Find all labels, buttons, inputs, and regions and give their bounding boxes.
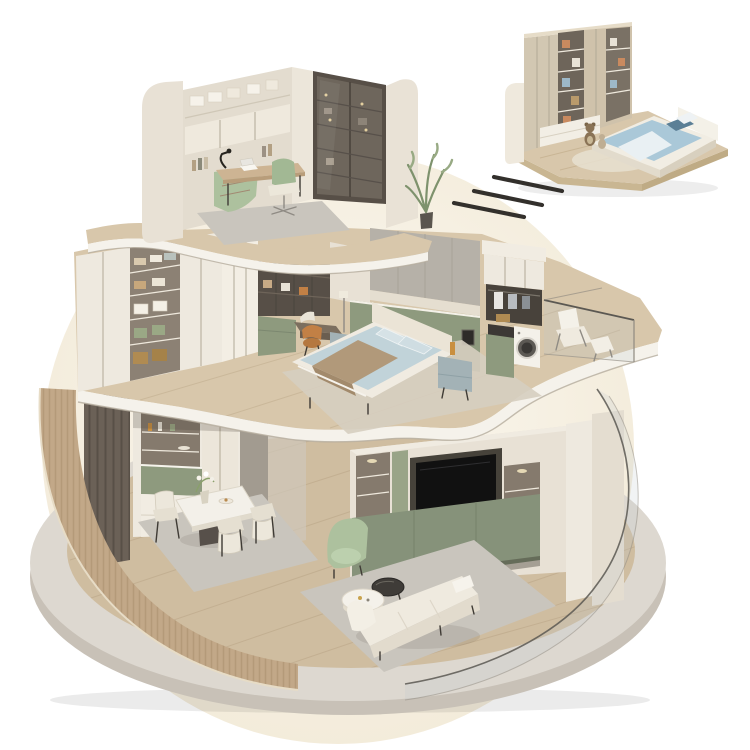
glass-door-bookcase bbox=[313, 71, 386, 204]
render-canvas bbox=[0, 0, 750, 750]
bear-head bbox=[586, 124, 595, 133]
folded-clothes bbox=[134, 281, 146, 289]
plush-body bbox=[598, 139, 606, 149]
hanging-towel bbox=[522, 296, 530, 309]
open-shelf-recess bbox=[606, 27, 630, 122]
plate-stack bbox=[178, 446, 190, 450]
scene-svg bbox=[0, 0, 750, 750]
floor-lamp-shade bbox=[339, 291, 348, 298]
book bbox=[192, 160, 196, 171]
amber-bottle bbox=[450, 342, 455, 355]
nightstand-right bbox=[438, 356, 472, 392]
niche-downlight bbox=[517, 469, 527, 473]
toy bbox=[562, 78, 570, 87]
wicker-basket bbox=[152, 349, 167, 361]
washer-drum bbox=[522, 343, 533, 354]
dining-chair-right bbox=[250, 503, 276, 543]
shelf-toy bbox=[610, 38, 617, 46]
green-bin bbox=[134, 328, 147, 338]
leather-box bbox=[299, 287, 308, 295]
niche-downlight bbox=[367, 459, 377, 463]
book bbox=[262, 146, 266, 157]
storage-box bbox=[281, 283, 290, 291]
washer-knob bbox=[518, 332, 521, 335]
shelf-box bbox=[190, 96, 204, 106]
hanging-towel bbox=[494, 292, 503, 309]
recliner-cushion bbox=[331, 548, 361, 564]
inset-curved-wall bbox=[505, 83, 524, 164]
shelf-box bbox=[266, 80, 278, 90]
decor-item bbox=[367, 599, 370, 602]
food-item bbox=[224, 498, 227, 501]
folded-clothes bbox=[150, 255, 162, 262]
storage-box bbox=[134, 304, 148, 314]
dining-chair-front bbox=[216, 516, 244, 556]
green-bin bbox=[152, 325, 165, 335]
decor-gold bbox=[358, 596, 362, 600]
plant-pot bbox=[420, 212, 433, 229]
laundry-green-cabinet bbox=[486, 334, 514, 378]
toy bbox=[562, 40, 570, 48]
shelf-box bbox=[208, 92, 222, 102]
flower-3 bbox=[210, 477, 214, 481]
book bbox=[268, 144, 272, 156]
curved-wall-left bbox=[142, 81, 183, 243]
shelf-light bbox=[361, 103, 364, 106]
chair-back bbox=[272, 159, 296, 187]
folded-clothes bbox=[152, 278, 165, 286]
shelf-toy bbox=[610, 80, 617, 88]
towel-basket bbox=[496, 314, 510, 322]
sofa-leg bbox=[440, 626, 441, 635]
leather-box bbox=[263, 280, 272, 288]
shelf-toy bbox=[618, 58, 625, 66]
dressing-green-cabinet bbox=[258, 316, 296, 356]
inset-kids-bedroom bbox=[505, 22, 728, 197]
wicker-basket bbox=[133, 352, 148, 364]
bear-belly bbox=[587, 136, 593, 144]
toy bbox=[571, 96, 579, 105]
flower-2 bbox=[203, 471, 208, 476]
folded-clothes bbox=[164, 253, 176, 260]
folded-clothes bbox=[134, 258, 146, 265]
lamp-head bbox=[227, 149, 232, 154]
storage-box bbox=[153, 301, 167, 311]
book bbox=[198, 158, 202, 170]
book bbox=[204, 157, 208, 169]
tv-wall-end-panel bbox=[566, 420, 592, 602]
flower-1 bbox=[197, 476, 202, 481]
shelf-light bbox=[365, 129, 368, 132]
hanging-towel bbox=[508, 294, 517, 309]
shelf-box bbox=[227, 88, 240, 98]
toy bbox=[572, 58, 580, 67]
shelf-item bbox=[358, 118, 367, 125]
shelf-box bbox=[247, 84, 260, 94]
